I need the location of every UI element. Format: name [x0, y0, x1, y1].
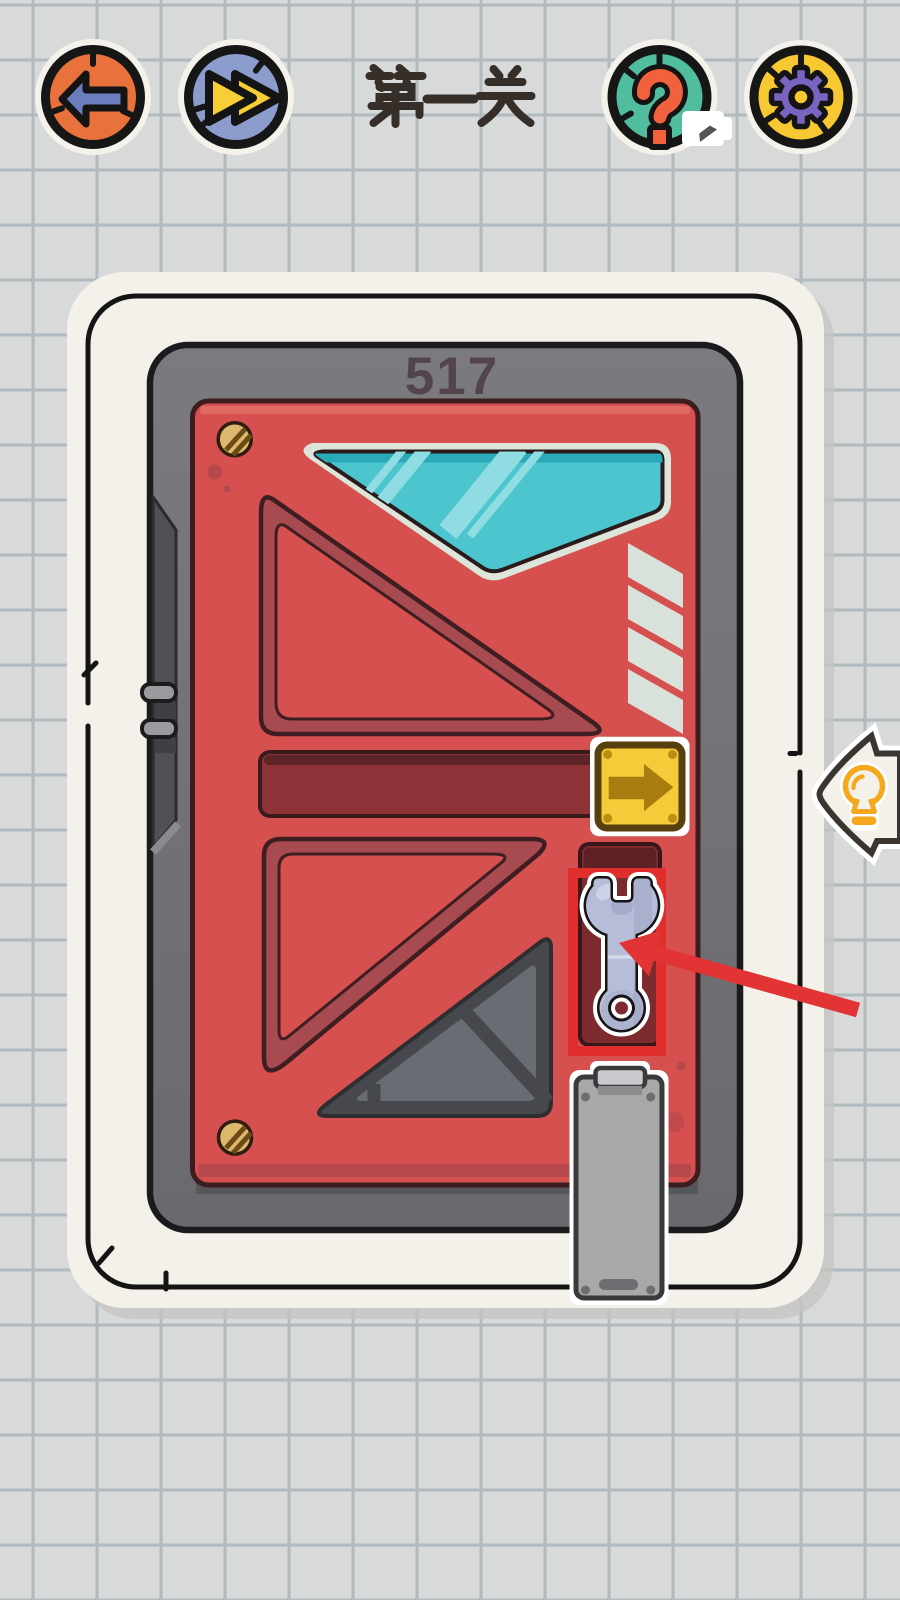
svg-text:517: 517	[405, 347, 499, 406]
